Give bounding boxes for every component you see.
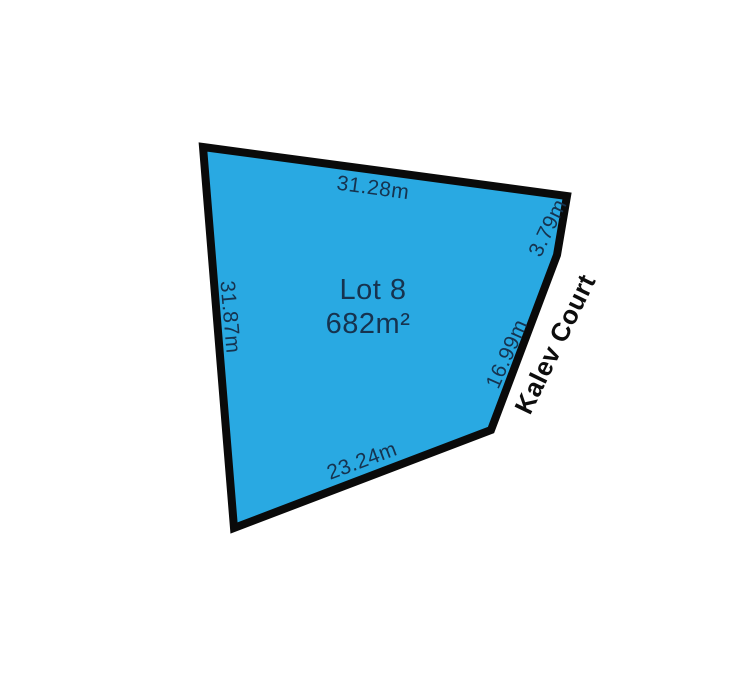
lot-area-label: 682m²	[326, 308, 411, 340]
lot-plan-svg: 31.28m 3.79m 16.99m 23.24m 31.87m Lot 8 …	[0, 0, 750, 673]
lot-plan-canvas: 31.28m 3.79m 16.99m 23.24m 31.87m Lot 8 …	[0, 0, 750, 673]
lot-name-label: Lot 8	[340, 274, 407, 306]
